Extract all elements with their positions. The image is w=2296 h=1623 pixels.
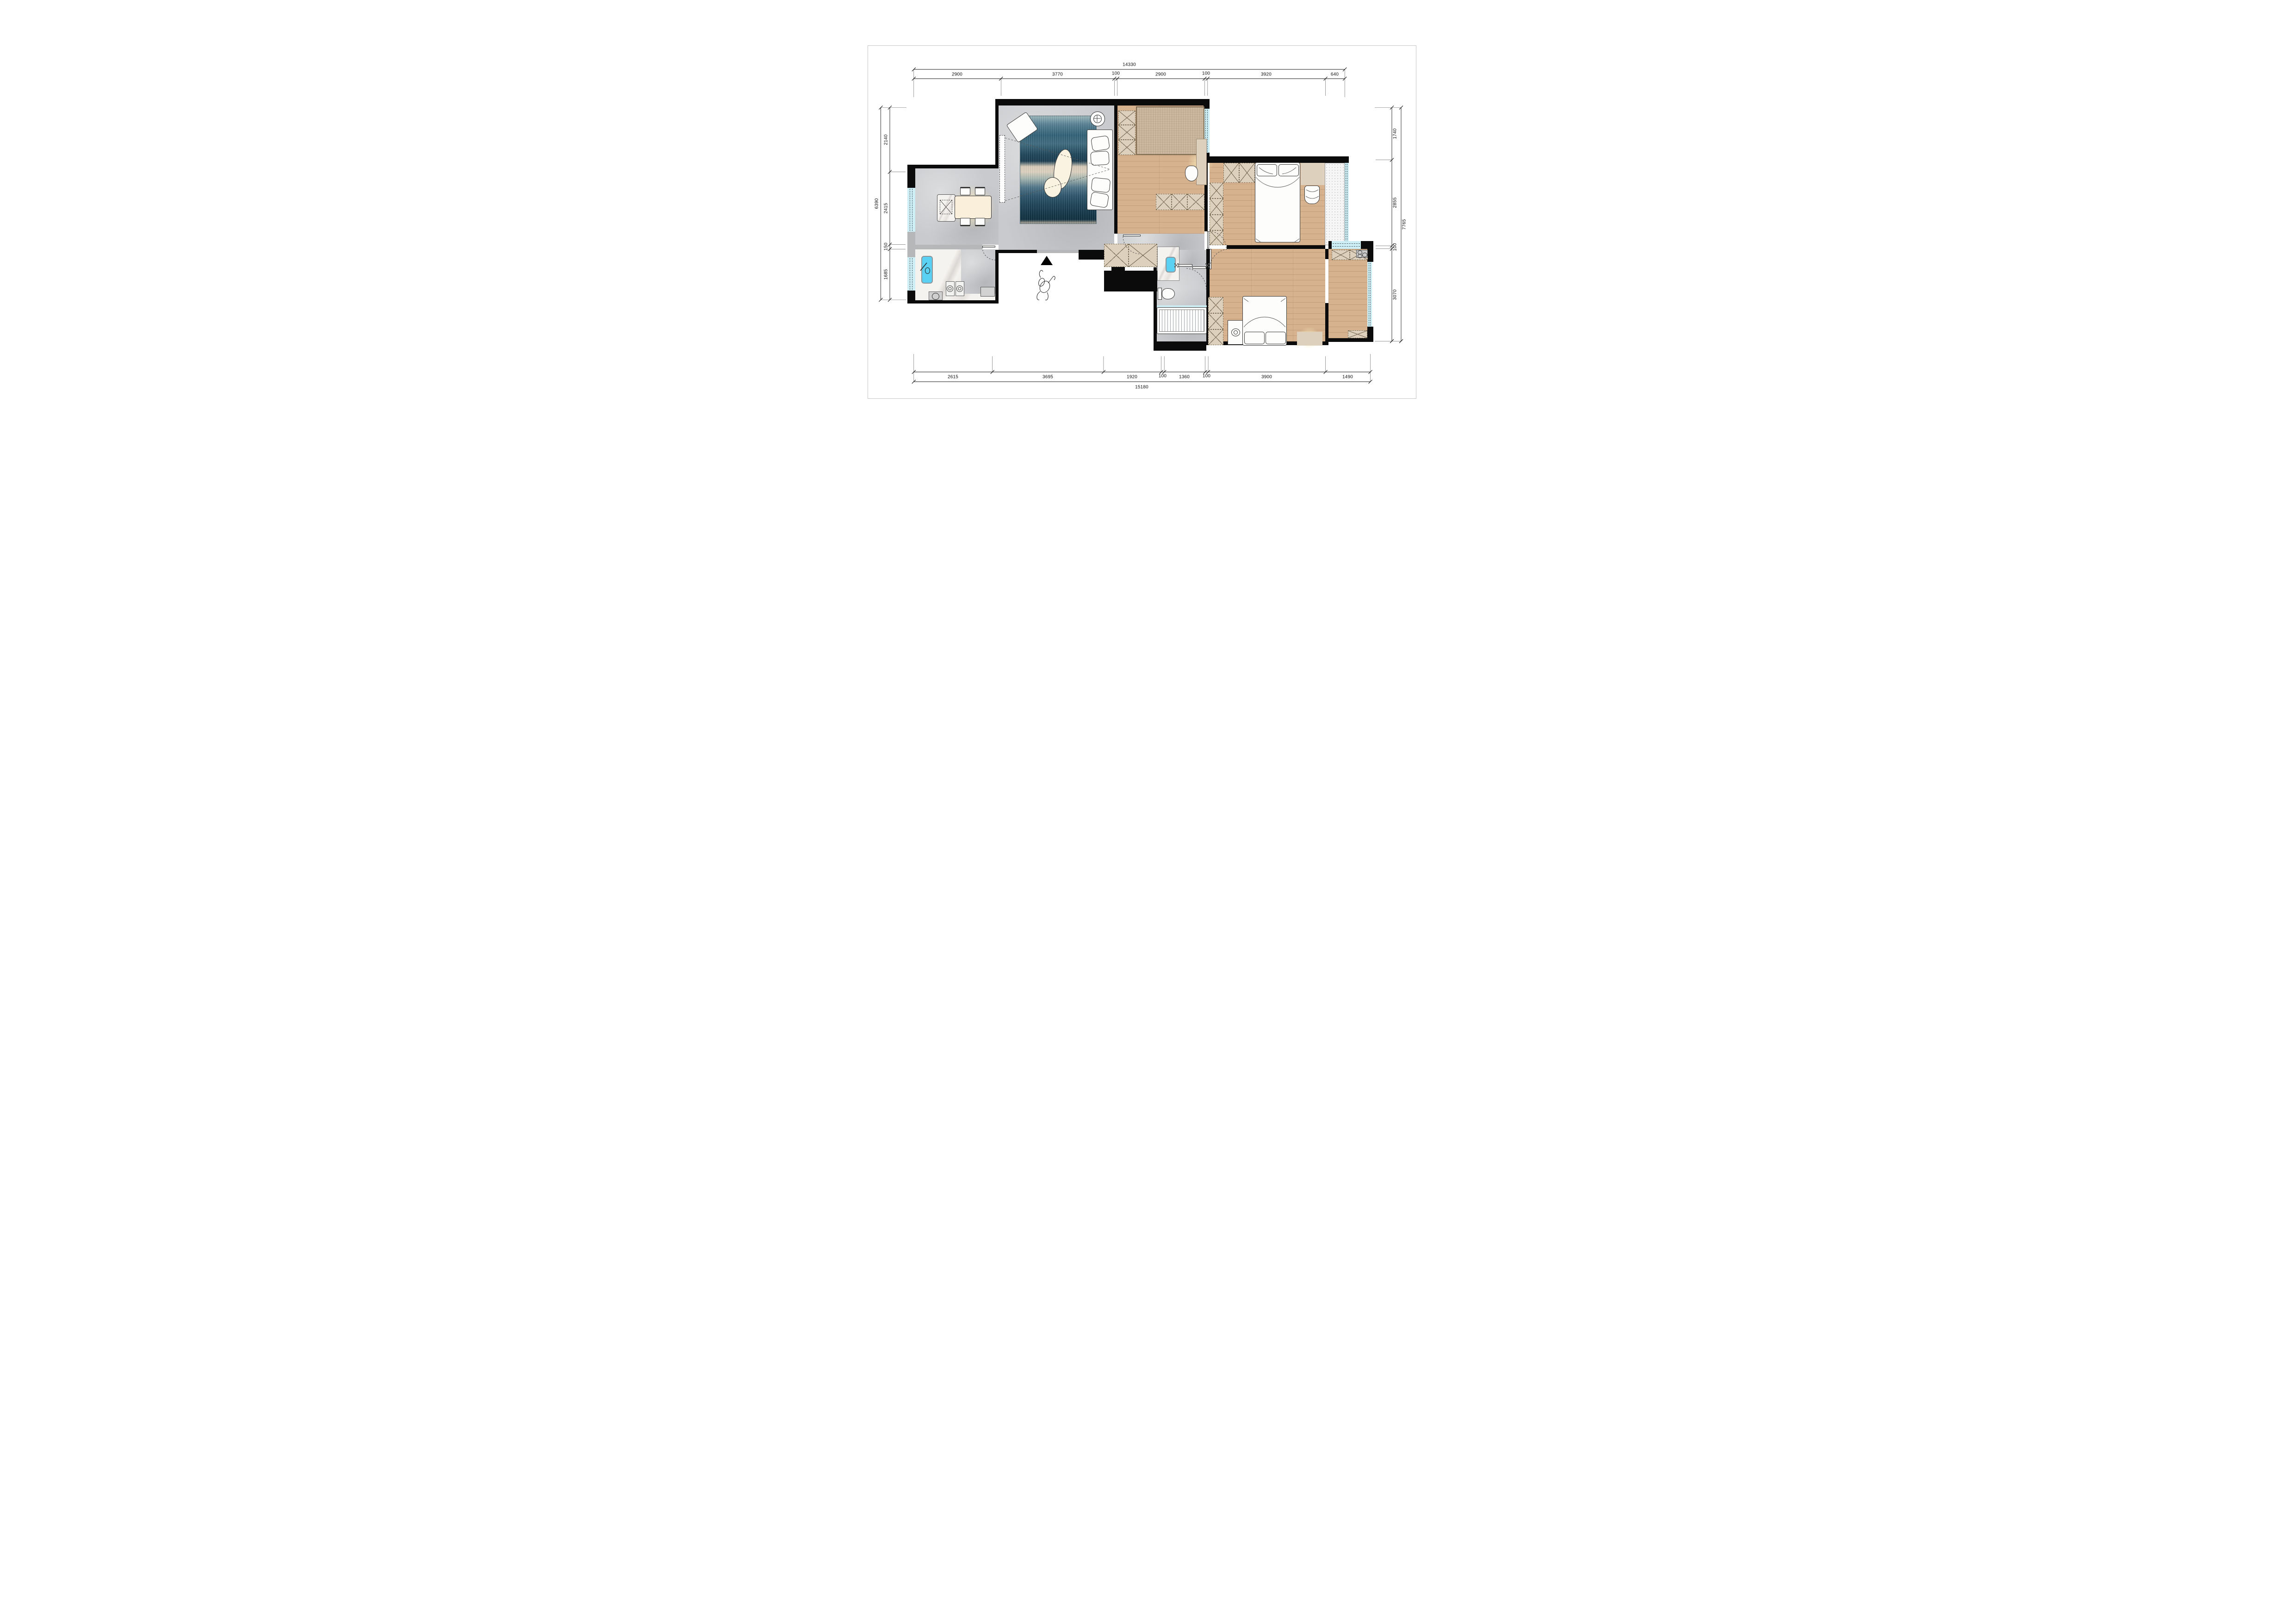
study-low-cabinet-cell xyxy=(1187,194,1204,210)
wall-left-upper xyxy=(907,168,915,188)
window-bedroom1-balcony xyxy=(1345,163,1349,245)
dim-top-seg-6: 640 xyxy=(1331,72,1339,77)
coffee-table-round xyxy=(1044,177,1061,198)
wall-kitchen-bottom xyxy=(907,300,999,304)
wall-kitchen-top xyxy=(915,245,982,249)
wall-flexroom-top-left xyxy=(1328,241,1332,249)
desk-chair xyxy=(1185,166,1198,181)
wall-living-study xyxy=(1114,105,1117,234)
bedroom1-wardrobe-cell xyxy=(1210,183,1223,198)
wall-entry-left xyxy=(999,250,1037,253)
tv-projection-screen xyxy=(999,135,1005,203)
dim-top-seg-2: 100 xyxy=(1112,71,1120,76)
wall-flexroom-right-a xyxy=(1367,249,1373,262)
dining-sideboard xyxy=(937,194,956,222)
wall-top xyxy=(995,99,1210,105)
wall-bedroom-divider xyxy=(1227,245,1325,249)
wall-flexroom-divider-a xyxy=(1325,249,1328,259)
sofa-cushion xyxy=(1090,151,1110,166)
dim-top-seg-5: 3920 xyxy=(1261,72,1272,77)
dim-right-seg-3: 3070 xyxy=(1392,289,1397,300)
wall-core-mass xyxy=(1104,271,1157,291)
dim-left-seg-0: 2140 xyxy=(883,134,888,145)
sofa-cushion xyxy=(1089,192,1109,208)
wall-entry-mass xyxy=(1079,253,1104,260)
bedroom1-wardrobe-cell xyxy=(1210,230,1223,245)
wall-dining-top xyxy=(907,165,999,168)
bedroom1-door-leaf xyxy=(1207,231,1209,248)
window-flexroom-top xyxy=(1332,241,1361,249)
study-desk xyxy=(1196,139,1207,185)
bed-pillow xyxy=(1257,164,1277,176)
wall-bathroom-mass xyxy=(1154,345,1206,351)
bedroom2-bed xyxy=(1242,296,1287,346)
cooktop-pot xyxy=(1358,254,1362,258)
dim-left-total: 6390 xyxy=(874,198,879,209)
dim-bottom-seg-5: 100 xyxy=(1203,374,1210,379)
wall-living-left xyxy=(995,99,999,168)
bedroom1-nightstand xyxy=(1301,163,1325,185)
dim-bottom-seg-1: 3695 xyxy=(1043,375,1053,380)
bedroom1-balcony-mat xyxy=(1325,163,1345,245)
dim-bottom-total: 15180 xyxy=(1135,385,1148,390)
toilet-tank xyxy=(1158,288,1162,300)
bedroom2-wardrobe-cell xyxy=(1208,329,1223,345)
floor-plan-sheet: 14330 2900 3770 100 2900 100 3920 640 26… xyxy=(861,0,1435,406)
entry-threshold xyxy=(1037,250,1079,253)
study-low-cabinet-cell xyxy=(1172,194,1187,210)
dim-bottom-seg-3: 100 xyxy=(1159,374,1167,379)
dim-top-seg-1: 3770 xyxy=(1052,72,1063,77)
flex-room-floor xyxy=(1328,249,1367,338)
study-platform-bed xyxy=(1136,106,1204,155)
dim-left-seg-3: 1685 xyxy=(883,269,888,279)
entry-arrow-icon xyxy=(1041,256,1053,265)
wall-flexroom-top-right xyxy=(1361,241,1373,249)
flexroom-counter-cell xyxy=(1332,250,1350,260)
wall-kitchen-right xyxy=(995,250,999,304)
dining-chair xyxy=(960,218,970,226)
window-flexroom-right xyxy=(1367,262,1372,327)
dining-chair xyxy=(975,187,985,195)
window-dining-balcony xyxy=(907,188,915,232)
bedroom2-nightstand xyxy=(1297,332,1322,346)
bedroom1-bed xyxy=(1255,162,1300,242)
gas-burner-icon xyxy=(956,281,964,296)
wall-bedroom1-top xyxy=(1208,156,1349,163)
study-door-leaf xyxy=(1123,235,1141,236)
floor-drain-circle xyxy=(932,293,939,300)
dim-top-seg-4: 100 xyxy=(1202,71,1210,76)
bed-pillow xyxy=(1244,332,1265,344)
sofa-cushion xyxy=(1090,135,1110,152)
sliding-door-post xyxy=(1205,263,1210,267)
bedroom1-wardrobe-cell xyxy=(1210,215,1223,230)
sliding-door-panel xyxy=(1192,266,1206,269)
kitchen-door-leaf xyxy=(982,246,995,248)
sink-drain xyxy=(925,267,930,274)
flexroom-low-cabinet xyxy=(1348,330,1367,338)
dining-chair xyxy=(960,187,970,195)
sofa-cushion xyxy=(1091,177,1111,193)
dim-right-total: 7765 xyxy=(1402,219,1407,229)
speaker-target-inner xyxy=(1234,330,1238,335)
dining-table xyxy=(955,196,992,219)
wall-entry-right xyxy=(1079,250,1104,253)
bed-pillow xyxy=(1278,164,1299,176)
dim-right-seg-0: 1740 xyxy=(1392,128,1397,139)
fridge xyxy=(980,287,995,297)
bathtub-icon xyxy=(1157,307,1207,334)
shoe-cabinet-cell xyxy=(1129,244,1157,267)
bedroom2-wardrobe-cell xyxy=(1208,313,1223,329)
dim-bottom-seg-0: 2615 xyxy=(948,375,958,380)
sliding-door-panel xyxy=(1179,264,1192,266)
ceiling-lamp-icon xyxy=(1093,115,1102,123)
shoe-cabinet-cell xyxy=(1104,244,1129,267)
wall-bathroom-left xyxy=(1154,267,1157,345)
dim-right-seg-1: 2855 xyxy=(1392,197,1397,208)
bathtub-slats xyxy=(1159,310,1204,332)
dim-top-total: 14330 xyxy=(1123,62,1136,68)
sofa xyxy=(1087,130,1113,210)
dim-bottom-seg-6: 3900 xyxy=(1261,375,1272,380)
wall-flexroom-bottom xyxy=(1328,338,1373,342)
study-wardrobe-cell xyxy=(1118,125,1136,140)
sliding-door-post xyxy=(1174,263,1179,267)
wall-flexroom-divider-b xyxy=(1325,303,1328,342)
bedroom1-top-cabinet-cell xyxy=(1223,163,1239,183)
wall-bathroom-bottom xyxy=(1154,341,1210,345)
dining-chair xyxy=(975,218,985,226)
dim-top-seg-0: 2900 xyxy=(952,72,962,77)
cooktop-pot xyxy=(1362,253,1367,257)
dim-left-seg-1: 2415 xyxy=(883,203,888,213)
study-low-cabinet-cell xyxy=(1156,194,1172,210)
bedroom2-door-leaf xyxy=(1210,249,1211,269)
bedroom1-stool xyxy=(1304,186,1320,204)
dim-bottom-seg-2: 1920 xyxy=(1127,375,1137,380)
toilet-icon xyxy=(1162,288,1175,299)
bedroom1-wardrobe-cell xyxy=(1210,198,1223,215)
bed-pillow xyxy=(1266,332,1286,344)
dim-left-seg-2: 150 xyxy=(883,242,888,250)
sideboard-ceiling-projection xyxy=(940,200,952,214)
bedroom2-wardrobe-cell xyxy=(1208,297,1223,313)
dim-top-seg-3: 2900 xyxy=(1155,72,1166,77)
window-kitchen-balcony xyxy=(907,257,915,291)
dim-right-seg-2: 100 xyxy=(1392,243,1397,251)
bedroom1-top-cabinet-cell xyxy=(1239,163,1255,183)
study-wardrobe-cell xyxy=(1118,111,1136,125)
gas-burner-icon xyxy=(946,281,955,296)
dim-bottom-seg-4: 1360 xyxy=(1179,375,1190,380)
wall-left-pier xyxy=(907,232,915,257)
dim-bottom-seg-7: 1490 xyxy=(1342,375,1353,380)
study-wardrobe-cell xyxy=(1118,140,1136,155)
